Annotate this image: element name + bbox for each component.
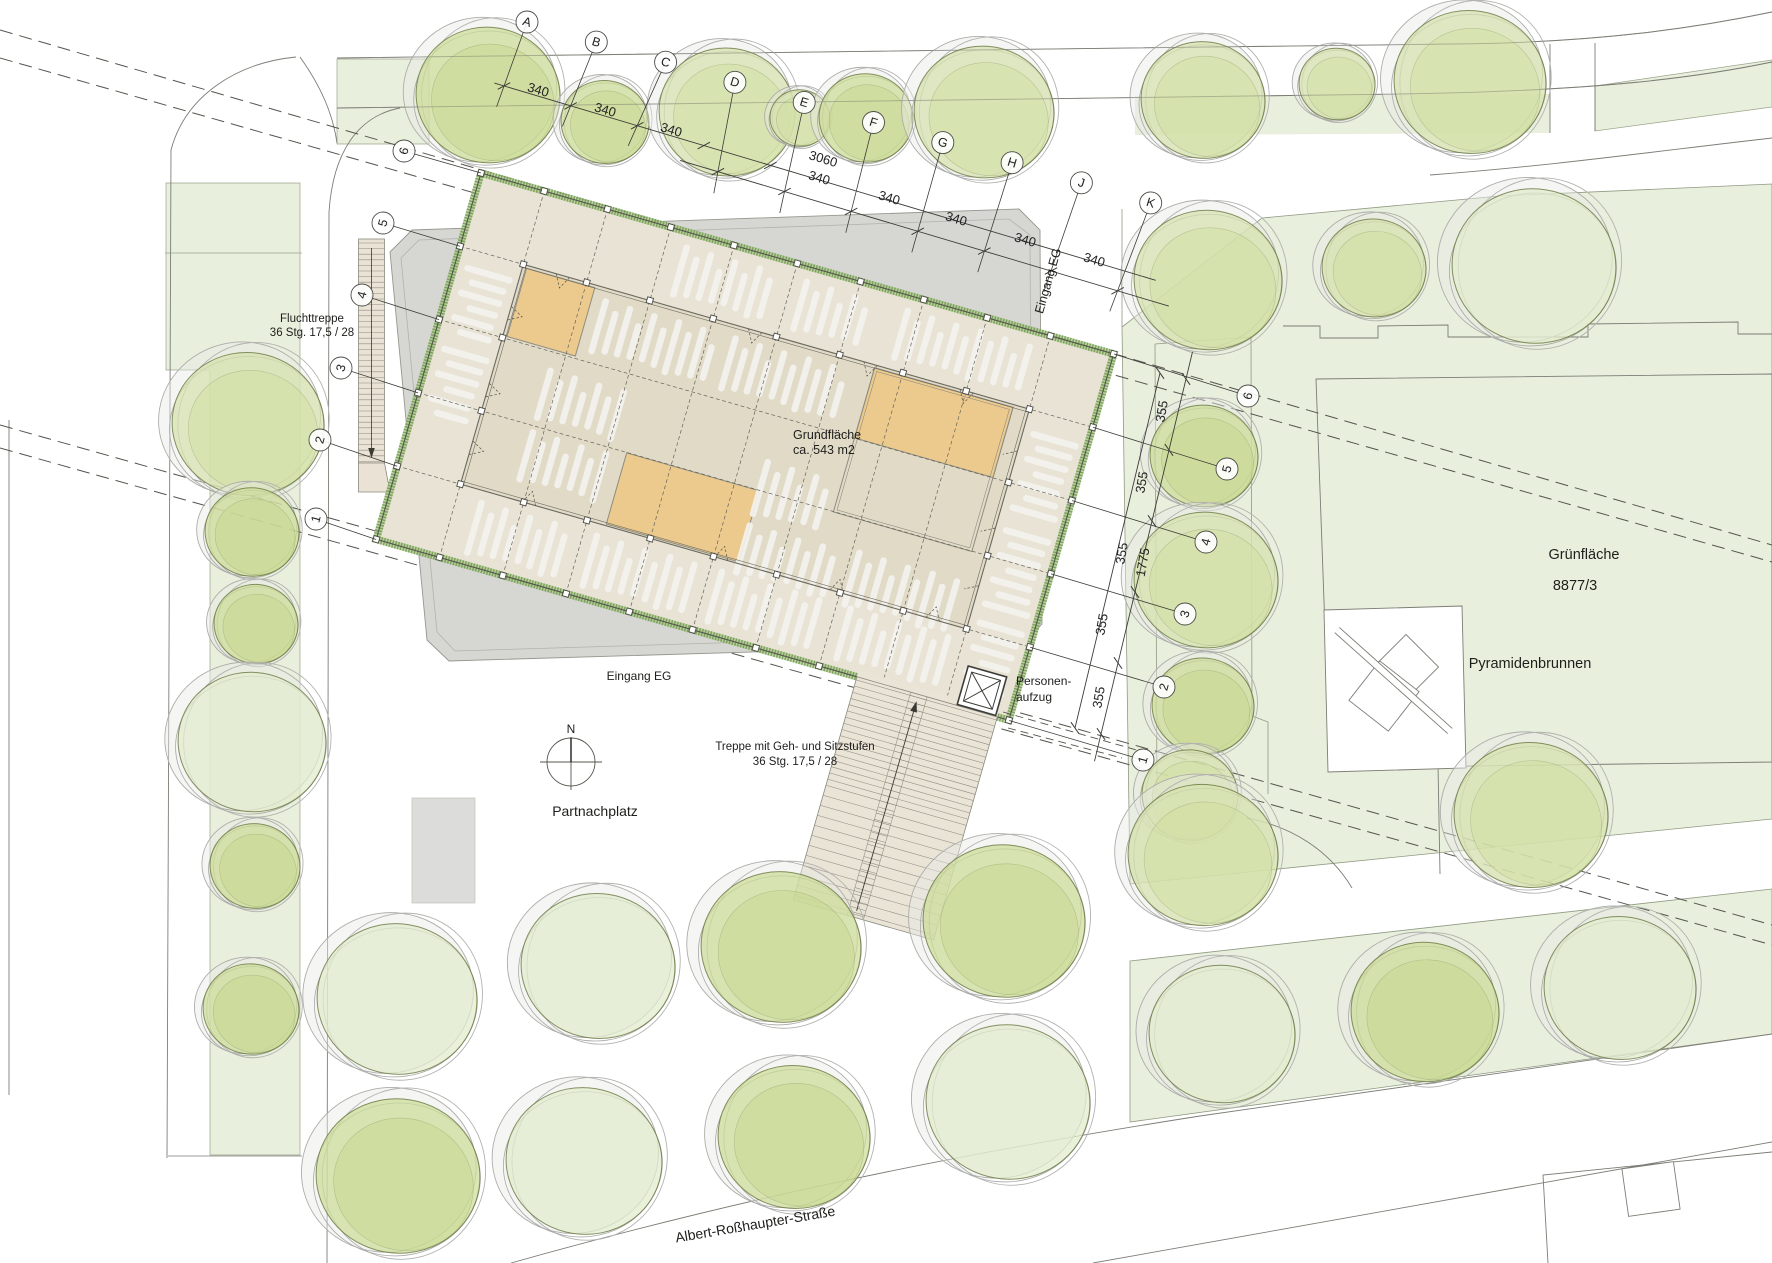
svg-text:36 Stg. 17,5 / 28: 36 Stg. 17,5 / 28 — [753, 756, 837, 768]
svg-text:Treppe mit Geh- und Sitzstufen: Treppe mit Geh- und Sitzstufen — [715, 741, 874, 753]
svg-text:Grünfläche: Grünfläche — [1549, 547, 1620, 563]
svg-text:340: 340 — [1082, 249, 1107, 270]
svg-text:Personen-: Personen- — [1016, 674, 1071, 688]
svg-text:Eingang EG: Eingang EG — [607, 669, 672, 683]
svg-text:aufzug: aufzug — [1016, 690, 1052, 704]
svg-text:340: 340 — [807, 167, 832, 188]
svg-text:355: 355 — [1092, 612, 1111, 636]
svg-text:N: N — [567, 722, 576, 736]
svg-text:Albert-Roßhaupter-Straße: Albert-Roßhaupter-Straße — [674, 1203, 836, 1246]
svg-text:Pyramidenbrunnen: Pyramidenbrunnen — [1469, 656, 1592, 672]
svg-text:340: 340 — [877, 187, 902, 208]
svg-text:Partnachplatz: Partnachplatz — [552, 803, 638, 819]
svg-text:355: 355 — [1089, 685, 1108, 709]
svg-text:8877/3: 8877/3 — [1553, 578, 1597, 594]
svg-text:ca. 543 m2: ca. 543 m2 — [793, 443, 855, 457]
svg-text:Fluchttreppe: Fluchttreppe — [280, 313, 344, 325]
svg-text:Grundfläche: Grundfläche — [793, 428, 861, 442]
svg-text:36 Stg. 17,5 / 28: 36 Stg. 17,5 / 28 — [270, 327, 354, 339]
